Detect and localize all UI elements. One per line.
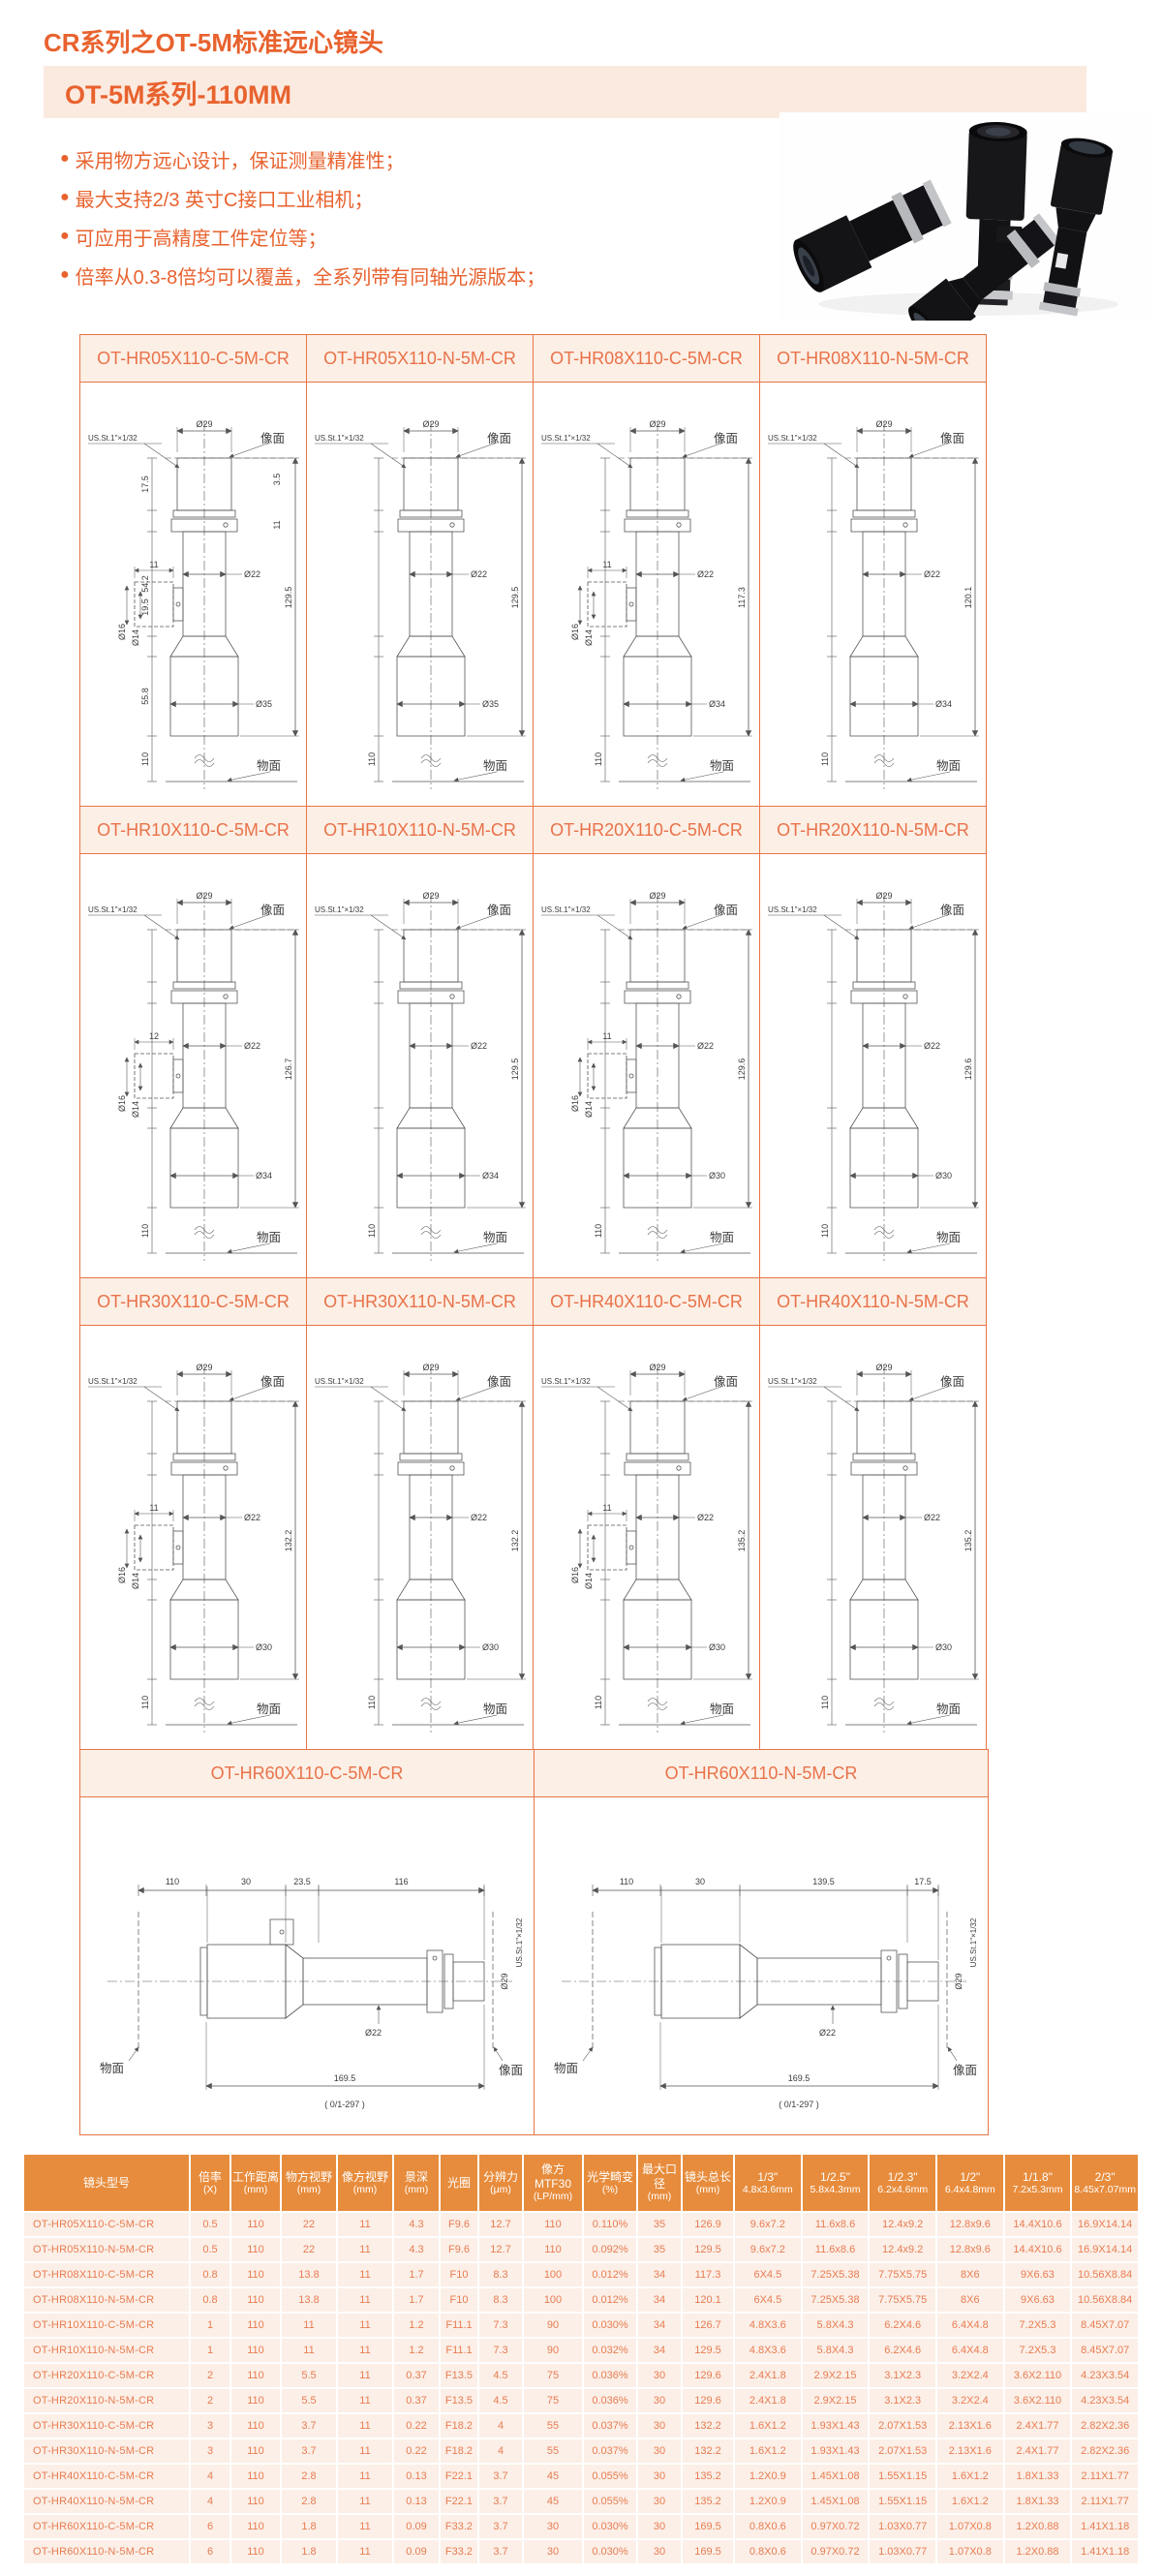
table-cell: 9.6x7.2 [735, 2238, 801, 2261]
header-line2: (mm) [648, 2191, 672, 2203]
svg-text:17.5: 17.5 [140, 475, 150, 493]
svg-text:像面: 像面 [260, 432, 285, 445]
table-cell: 1.6X1.2 [937, 2490, 1003, 2513]
table-cell: 129.6 [683, 2389, 733, 2412]
table-cell: 4 [479, 2414, 522, 2438]
table-cell: 110 [231, 2515, 280, 2538]
table-cell: 1.2X0.9 [735, 2465, 801, 2488]
svg-text:110: 110 [140, 1696, 150, 1709]
table-cell: 30 [638, 2465, 681, 2488]
lens-technical-drawing: 11 Ø16 Ø14Ø29 US.St.1"×1/32 像面 Ø22 Ø34 物… [534, 383, 759, 806]
svg-text:11: 11 [602, 560, 611, 569]
table-cell: 11.6x8.6 [803, 2213, 869, 2236]
svg-text:11: 11 [149, 1503, 158, 1513]
svg-text:54.2: 54.2 [140, 575, 150, 593]
table-cell: 2 [191, 2364, 229, 2387]
table-cell: 0.5 [191, 2238, 229, 2261]
svg-text:物面: 物面 [257, 1231, 281, 1244]
table-header-cell: 像方MTF30(LP/mm) [524, 2155, 582, 2211]
table-cell: 16.9X14.14 [1072, 2213, 1138, 2236]
table-cell: 1.8X1.33 [1005, 2490, 1071, 2513]
svg-text:Ø22: Ø22 [697, 569, 714, 579]
table-cell: 1.41X1.18 [1072, 2540, 1138, 2563]
table-header-cell: 1/1.8"7.2x5.3mm [1005, 2155, 1071, 2211]
svg-text:Ø29: Ø29 [422, 1363, 439, 1372]
table-cell: 14.4X10.6 [1005, 2238, 1071, 2261]
table-cell: 34 [638, 2314, 681, 2337]
table-cell: 3.7 [479, 2490, 522, 2513]
table-cell: 13.8 [282, 2288, 336, 2312]
coaxial-port [580, 1038, 636, 1098]
table-cell: 12.4x9.2 [870, 2213, 935, 2236]
svg-text:Ø14: Ø14 [131, 1101, 140, 1118]
table-cell: 7.3 [479, 2314, 522, 2337]
header-line1: 1/2" [960, 2170, 980, 2184]
table-cell: 0.8 [191, 2263, 229, 2286]
table-cell: 0.8X0.6 [735, 2540, 801, 2563]
table-cell: 11 [338, 2389, 392, 2412]
lens-technical-drawing: Ø29 US.St.1"×1/32 像面 Ø22 Ø30 物面 132.2 11… [307, 1326, 533, 1749]
table-cell: 3.1X2.3 [870, 2364, 935, 2387]
svg-text:110: 110 [367, 1696, 377, 1709]
table-cell: 6X4.5 [735, 2263, 801, 2286]
svg-text:Ø30: Ø30 [709, 1642, 725, 1652]
svg-text:Ø14: Ø14 [584, 1101, 594, 1118]
table-cell: 0.13 [394, 2465, 439, 2488]
bullet-icon: ● [60, 151, 70, 167]
table-cell: 110 [231, 2314, 280, 2337]
table-cell: 4.3 [394, 2238, 439, 2261]
table-cell: 75 [524, 2389, 582, 2412]
svg-text:23.5: 23.5 [293, 1877, 311, 1886]
table-cell: 1.45X1.08 [803, 2465, 869, 2488]
table-cell: 1.45X1.08 [803, 2490, 869, 2513]
bullet-icon: ● [60, 267, 70, 283]
svg-text:110: 110 [594, 1224, 603, 1238]
table-cell: 3.1X2.3 [870, 2389, 935, 2412]
model-header: OT-HR08X110-C-5M-CR [533, 334, 760, 383]
svg-text:Ø22: Ø22 [697, 1513, 714, 1522]
svg-text:Ø22: Ø22 [697, 1041, 714, 1051]
table-cell: 11 [338, 2540, 392, 2563]
svg-text:Ø22: Ø22 [924, 1041, 940, 1051]
feature-text: 倍率从0.3-8倍均可以覆盖，全系列带有同轴光源版本； [76, 261, 546, 290]
table-cell: 30 [638, 2490, 681, 2513]
svg-text:物面: 物面 [483, 759, 507, 773]
table-header-cell: 1/2"6.4x4.8mm [937, 2155, 1003, 2211]
header-line1: 工作距离 [232, 2170, 279, 2184]
drawing-row: 11 Ø16 Ø14Ø29 US.St.1"×1/32 像面 Ø22 Ø35 物… [79, 382, 990, 807]
svg-text:Ø30: Ø30 [709, 1171, 725, 1181]
table-cell: 1.2X0.88 [1005, 2515, 1071, 2538]
table-cell: 5.5 [282, 2364, 336, 2387]
svg-text:US.St.1"×1/32: US.St.1"×1/32 [515, 1917, 524, 1967]
table-cell: 2.9X2.15 [803, 2364, 869, 2387]
svg-text:Ø16: Ø16 [117, 1567, 127, 1583]
header-line1: 光学畸变 [587, 2170, 633, 2184]
table-cell: 11 [338, 2263, 392, 2286]
table-cell: F9.6 [441, 2213, 477, 2236]
table-cell: 4.23X3.54 [1072, 2364, 1138, 2387]
svg-text:US.St.1"×1/32: US.St.1"×1/32 [315, 434, 364, 443]
svg-text:Ø22: Ø22 [244, 1041, 260, 1051]
feature-text: 最大支持2/3 英寸C接口工业相机； [76, 184, 374, 212]
table-cell: 11 [338, 2465, 392, 2488]
svg-text:像面: 像面 [940, 432, 964, 445]
svg-text:Ø29: Ø29 [649, 891, 665, 901]
table-cell: 10.56X8.84 [1072, 2288, 1138, 2312]
table-cell: 0.5 [191, 2213, 229, 2236]
svg-text:Ø30: Ø30 [935, 1171, 952, 1181]
model-cell: OT-HR05X110-C-5M-CR [24, 2213, 189, 2236]
svg-text:Ø16: Ø16 [570, 1095, 580, 1112]
table-cell: 129.6 [683, 2364, 733, 2387]
table-cell: 11 [282, 2339, 336, 2362]
header-line1: 镜头总长 [685, 2170, 731, 2184]
header-line1: 光圈 [447, 2176, 471, 2190]
table-header-cell: 1/3"4.8x3.6mm [735, 2155, 801, 2211]
table-cell: 2.4X1.77 [1005, 2414, 1071, 2438]
table-header-cell: 倍率(X) [191, 2155, 229, 2211]
table-cell: 126.9 [683, 2213, 733, 2236]
model-header: OT-HR20X110-N-5M-CR [759, 806, 987, 854]
table-cell: 120.1 [683, 2288, 733, 2312]
svg-text:Ø29: Ø29 [649, 1363, 665, 1372]
table-cell: 3.2X2.4 [937, 2364, 1003, 2387]
table-header-cell: 物方视野(mm) [282, 2155, 336, 2211]
lens-drawing-cell: Ø29 US.St.1"×1/32 像面 Ø22 Ø30 物面 135.2 11… [759, 1325, 987, 1750]
table-cell: 34 [638, 2263, 681, 2286]
table-cell: 110 [231, 2465, 280, 2488]
table-cell: 1.2 [394, 2314, 439, 2337]
table-cell: 110 [231, 2263, 280, 2286]
lens-drawing-cell: 12 Ø16 Ø14Ø29 US.St.1"×1/32 像面 Ø22 Ø34 物… [79, 853, 307, 1278]
table-cell: 110 [231, 2339, 280, 2362]
svg-text:110: 110 [594, 752, 603, 766]
table-cell: 1.8 [282, 2540, 336, 2563]
svg-text:110: 110 [820, 1696, 830, 1709]
table-header-cell: 1/2.3"6.2x4.6mm [870, 2155, 935, 2211]
table-cell: 0.012% [584, 2288, 636, 2312]
header-line2: 5.8x4.3mm [810, 2184, 861, 2196]
svg-text:US.St.1"×1/32: US.St.1"×1/32 [768, 905, 817, 914]
spec-table: 镜头型号倍率(X)工作距离(mm)物方视野(mm)像方视野(mm)景深(mm)光… [24, 2155, 1138, 2563]
table-cell: 0.22 [394, 2439, 439, 2463]
svg-text:120.1: 120.1 [963, 587, 973, 609]
table-cell: 12.7 [479, 2238, 522, 2261]
table-cell: 5.8X4.3 [803, 2339, 869, 2362]
table-cell: 0.055% [584, 2465, 636, 2488]
table-cell: 11 [338, 2213, 392, 2236]
table-cell: 8X6 [937, 2263, 1003, 2286]
header-line2: 4.8x3.6mm [743, 2184, 793, 2196]
table-cell: F10 [441, 2288, 477, 2312]
svg-text:Ø30: Ø30 [482, 1642, 499, 1652]
table-cell: F11.1 [441, 2314, 477, 2337]
svg-text:US.St.1"×1/32: US.St.1"×1/32 [88, 1377, 138, 1386]
svg-text:US.St.1"×1/32: US.St.1"×1/32 [969, 1917, 978, 1967]
table-cell: 0.037% [584, 2414, 636, 2438]
table-cell: 135.2 [683, 2465, 733, 2488]
header-line2: 7.2x5.3mm [1013, 2184, 1063, 2196]
svg-text:Ø29: Ø29 [500, 1973, 509, 1989]
table-cell: 0.8X0.6 [735, 2515, 801, 2538]
table-cell: 1.07X0.8 [937, 2515, 1003, 2538]
table-cell: 0.09 [394, 2540, 439, 2563]
table-cell: 1.93X1.43 [803, 2414, 869, 2438]
svg-text:11: 11 [602, 1503, 611, 1513]
table-cell: F11.1 [441, 2339, 477, 2362]
svg-text:Ø22: Ø22 [924, 569, 940, 579]
svg-text:139.5: 139.5 [812, 1877, 835, 1886]
svg-text:Ø29: Ø29 [649, 419, 665, 429]
table-cell: 5.8X4.3 [803, 2314, 869, 2337]
svg-text:( 0/1-297 ): ( 0/1-297 ) [779, 2100, 819, 2109]
header-line1: 2/3" [1095, 2170, 1116, 2184]
model-header: OT-HR20X110-C-5M-CR [533, 806, 760, 854]
table-cell: 2.13X1.6 [937, 2439, 1003, 2463]
header-line1: 1/2.3" [888, 2170, 918, 2184]
table-cell: 4 [191, 2490, 229, 2513]
table-header-cell: 工作距离(mm) [231, 2155, 280, 2211]
table-cell: 110 [524, 2213, 582, 2236]
table-cell: 11 [338, 2339, 392, 2362]
svg-text:Ø14: Ø14 [584, 1573, 594, 1589]
table-cell: 12.4x9.2 [870, 2238, 935, 2261]
table-cell: 2.07X1.53 [870, 2414, 935, 2438]
svg-text:19.5: 19.5 [140, 598, 150, 616]
model-header: OT-HR05X110-N-5M-CR [306, 334, 534, 383]
header-line1: 分辨力 [483, 2170, 518, 2184]
svg-text:Ø22: Ø22 [471, 1513, 487, 1522]
svg-text:物面: 物面 [257, 759, 281, 773]
table-cell: 75 [524, 2364, 582, 2387]
svg-text:物面: 物面 [100, 2062, 124, 2075]
table-cell: 1.8 [282, 2515, 336, 2538]
drawing-row: 1103023.5116169.5 ( 0/1-297 ) 物面 像面 US.S… [79, 1796, 990, 2135]
table-cell: 7.25X5.38 [803, 2288, 869, 2312]
lens-drawing-cell: Ø29 US.St.1"×1/32 像面 Ø22 Ø34 物面 120.1 11… [759, 382, 987, 807]
svg-text:US.St.1"×1/32: US.St.1"×1/32 [88, 434, 138, 443]
table-header-cell: 2/3"8.45x7.07mm [1072, 2155, 1138, 2211]
table-cell: 35 [638, 2238, 681, 2261]
svg-text:110: 110 [367, 1224, 377, 1238]
svg-text:129.5: 129.5 [510, 1058, 520, 1081]
coaxial-port [127, 567, 183, 627]
table-cell: 2.11X1.77 [1072, 2490, 1138, 2513]
header-line2: 8.45x7.07mm [1074, 2184, 1136, 2196]
table-cell: 11 [338, 2515, 392, 2538]
drawing-row: 12 Ø16 Ø14Ø29 US.St.1"×1/32 像面 Ø22 Ø34 物… [79, 853, 990, 1278]
svg-text:116: 116 [394, 1877, 408, 1886]
table-cell: 7.3 [479, 2339, 522, 2362]
table-cell: 2.11X1.77 [1072, 2465, 1138, 2488]
table-cell: 2.4X1.8 [735, 2364, 801, 2387]
table-cell: 4.5 [479, 2364, 522, 2387]
header-line2: 6.2x4.6mm [877, 2184, 928, 2196]
model-cell: OT-HR40X110-C-5M-CR [24, 2465, 189, 2488]
svg-text:Ø34: Ø34 [256, 1171, 272, 1181]
header-line1: 倍率 [199, 2170, 222, 2184]
table-cell: 126.7 [683, 2314, 733, 2337]
table-cell: 1.03X0.77 [870, 2515, 935, 2538]
table-cell: 1 [191, 2314, 229, 2337]
svg-text:Ø29: Ø29 [196, 891, 212, 901]
model-cell: OT-HR20X110-N-5M-CR [24, 2389, 189, 2412]
svg-text:129.6: 129.6 [737, 1058, 747, 1081]
svg-text:132.2: 132.2 [510, 1530, 520, 1552]
header-line2: (mm) [405, 2184, 429, 2196]
table-cell: 6 [191, 2515, 229, 2538]
table-cell: 4 [191, 2465, 229, 2488]
svg-text:物面: 物面 [936, 759, 961, 773]
table-cell: 0.030% [584, 2540, 636, 2563]
table-cell: 110 [231, 2439, 280, 2463]
svg-text:像面: 像面 [714, 1375, 738, 1389]
svg-text:Ø22: Ø22 [471, 1041, 487, 1051]
svg-text:US.St.1"×1/32: US.St.1"×1/32 [88, 905, 138, 914]
table-cell: 0.09 [394, 2515, 439, 2538]
feature-item: ●最大支持2/3 英寸C接口工业相机； [60, 178, 602, 217]
feature-item: ●倍率从0.3-8倍均可以覆盖，全系列带有同轴光源版本； [60, 256, 602, 294]
header-line2: (LP/mm) [534, 2191, 572, 2203]
svg-text:像面: 像面 [499, 2064, 523, 2077]
table-cell: 2.82X2.36 [1072, 2439, 1138, 2463]
table-cell: 129.5 [683, 2339, 733, 2362]
product-photo-area [780, 112, 1152, 321]
model-header: OT-HR10X110-C-5M-CR [79, 806, 307, 854]
lens-technical-drawing: 11030139.517.5169.5 ( 0/1-297 ) 物面 像面 US… [535, 1797, 988, 2134]
table-cell: 35 [638, 2213, 681, 2236]
header-line1: 1/3" [757, 2170, 778, 2184]
header-line1: 景深 [405, 2170, 428, 2184]
table-cell: 2.13X1.6 [937, 2414, 1003, 2438]
drawings-grid: OT-HR05X110-C-5M-CROT-HR05X110-N-5M-CROT… [79, 334, 990, 2135]
table-cell: 11 [338, 2414, 392, 2438]
table-header-cell: 1/2.5"5.8x4.3mm [803, 2155, 869, 2211]
table-cell: 7.75X5.75 [870, 2288, 935, 2312]
coaxial-port [127, 1510, 183, 1570]
table-header-cell: 镜头总长(mm) [683, 2155, 733, 2211]
svg-text:Ø35: Ø35 [256, 699, 272, 709]
model-header: OT-HR05X110-C-5M-CR [79, 334, 307, 383]
model-cell: OT-HR08X110-C-5M-CR [24, 2263, 189, 2286]
table-cell: 11 [338, 2490, 392, 2513]
table-cell: F22.1 [441, 2490, 477, 2513]
table-cell: 0.036% [584, 2364, 636, 2387]
series-subtitle-bar: OT-5M系列-110MM [44, 66, 1086, 118]
table-cell: 30 [638, 2389, 681, 2412]
svg-text:11: 11 [272, 520, 282, 529]
svg-text:11: 11 [602, 1031, 611, 1041]
table-cell: 13.8 [282, 2263, 336, 2286]
svg-text:Ø29: Ø29 [875, 891, 892, 901]
table-cell: 0.036% [584, 2389, 636, 2412]
model-cell: OT-HR10X110-N-5M-CR [24, 2339, 189, 2362]
lens-drawing-cell: 11 Ø16 Ø14Ø29 US.St.1"×1/32 像面 Ø22 Ø30 物… [533, 853, 760, 1278]
svg-text:US.St.1"×1/32: US.St.1"×1/32 [315, 1377, 364, 1386]
svg-text:117.3: 117.3 [737, 587, 747, 608]
svg-text:110: 110 [367, 752, 377, 766]
svg-text:110: 110 [820, 752, 830, 766]
table-cell: F18.2 [441, 2414, 477, 2438]
header-line1: 1/2.5" [820, 2170, 850, 2184]
drawing-row: 11 Ø16 Ø14Ø29 US.St.1"×1/32 像面 Ø22 Ø30 物… [79, 1325, 990, 1750]
svg-text:126.7: 126.7 [284, 1058, 293, 1081]
lens-drawing-cell: 11 Ø16 Ø14Ø29 US.St.1"×1/32 像面 Ø22 Ø34 物… [533, 382, 760, 807]
table-cell: 11 [338, 2238, 392, 2261]
table-cell: F22.1 [441, 2465, 477, 2488]
table-cell: 8.3 [479, 2288, 522, 2312]
svg-text:Ø29: Ø29 [422, 419, 439, 429]
table-cell: 11.6x8.6 [803, 2238, 869, 2261]
lens-technical-drawing: Ø29 US.St.1"×1/32 像面 Ø22 Ø34 物面 129.5 11… [307, 854, 533, 1277]
model-cell: OT-HR30X110-C-5M-CR [24, 2414, 189, 2438]
svg-text:3.5: 3.5 [272, 474, 282, 486]
svg-text:Ø29: Ø29 [196, 1363, 212, 1372]
table-header-cell: 镜头型号 [24, 2155, 189, 2211]
table-cell: 1.93X1.43 [803, 2439, 869, 2463]
lens-drawing-cell: Ø29 US.St.1"×1/32 像面 Ø22 Ø30 物面 132.2 11… [306, 1325, 534, 1750]
table-cell: 12.8x9.6 [937, 2213, 1003, 2236]
svg-text:Ø22: Ø22 [244, 569, 260, 579]
table-cell: 1.03X0.77 [870, 2540, 935, 2563]
table-cell: 30 [638, 2439, 681, 2463]
header-line2: (mm) [297, 2184, 321, 2196]
table-cell: 110 [231, 2490, 280, 2513]
table-cell: 0.37 [394, 2364, 439, 2387]
svg-text:110: 110 [620, 1877, 633, 1886]
table-cell: 7.75X5.75 [870, 2263, 935, 2286]
table-cell: 6.2X4.6 [870, 2339, 935, 2362]
svg-text:Ø34: Ø34 [935, 699, 952, 709]
lens-technical-drawing: 12 Ø16 Ø14Ø29 US.St.1"×1/32 像面 Ø22 Ø34 物… [80, 854, 306, 1277]
table-cell: 12.8x9.6 [937, 2238, 1003, 2261]
table-cell: 30 [524, 2540, 582, 2563]
svg-text:Ø29: Ø29 [954, 1973, 963, 1989]
svg-text:30: 30 [695, 1877, 705, 1886]
table-cell: F33.2 [441, 2515, 477, 2538]
svg-text:110: 110 [140, 752, 150, 766]
svg-text:110: 110 [594, 1696, 603, 1709]
table-cell: 1.07X0.8 [937, 2540, 1003, 2563]
table-cell: 3.7 [282, 2414, 336, 2438]
model-header-row: OT-HR30X110-C-5M-CROT-HR30X110-N-5M-CROT… [79, 1277, 990, 1326]
table-cell: 132.2 [683, 2414, 733, 2438]
table-header-cell: 光学畸变(%) [584, 2155, 636, 2211]
table-cell: 6.4X4.8 [937, 2314, 1003, 2337]
table-cell: 11 [338, 2439, 392, 2463]
svg-text:像面: 像面 [487, 904, 511, 917]
series-subtitle: OT-5M系列-110MM [65, 74, 291, 111]
table-cell: 0.030% [584, 2515, 636, 2538]
table-cell: 110 [231, 2389, 280, 2412]
svg-text:像面: 像面 [953, 2064, 977, 2077]
bullet-icon: ● [60, 190, 70, 205]
table-cell: 8X6 [937, 2288, 1003, 2312]
lens-technical-drawing: 11 Ø16 Ø14Ø29 US.St.1"×1/32 像面 Ø22 Ø30 物… [80, 1326, 306, 1749]
lens-technical-drawing: 11 Ø16 Ø14Ø29 US.St.1"×1/32 像面 Ø22 Ø30 物… [534, 854, 759, 1277]
svg-text:Ø30: Ø30 [935, 1642, 952, 1652]
model-header-row: OT-HR10X110-C-5M-CROT-HR10X110-N-5M-CROT… [79, 806, 990, 854]
header-line2: (%) [602, 2184, 618, 2196]
model-header: OT-HR40X110-N-5M-CR [759, 1277, 987, 1326]
table-header-cell: 最大口径(mm) [638, 2155, 681, 2211]
table-cell: 1.55X1.15 [870, 2490, 935, 2513]
table-cell: 2 [191, 2389, 229, 2412]
table-cell: 16.9X14.14 [1072, 2238, 1138, 2261]
table-cell: 1.41X1.18 [1072, 2515, 1138, 2538]
